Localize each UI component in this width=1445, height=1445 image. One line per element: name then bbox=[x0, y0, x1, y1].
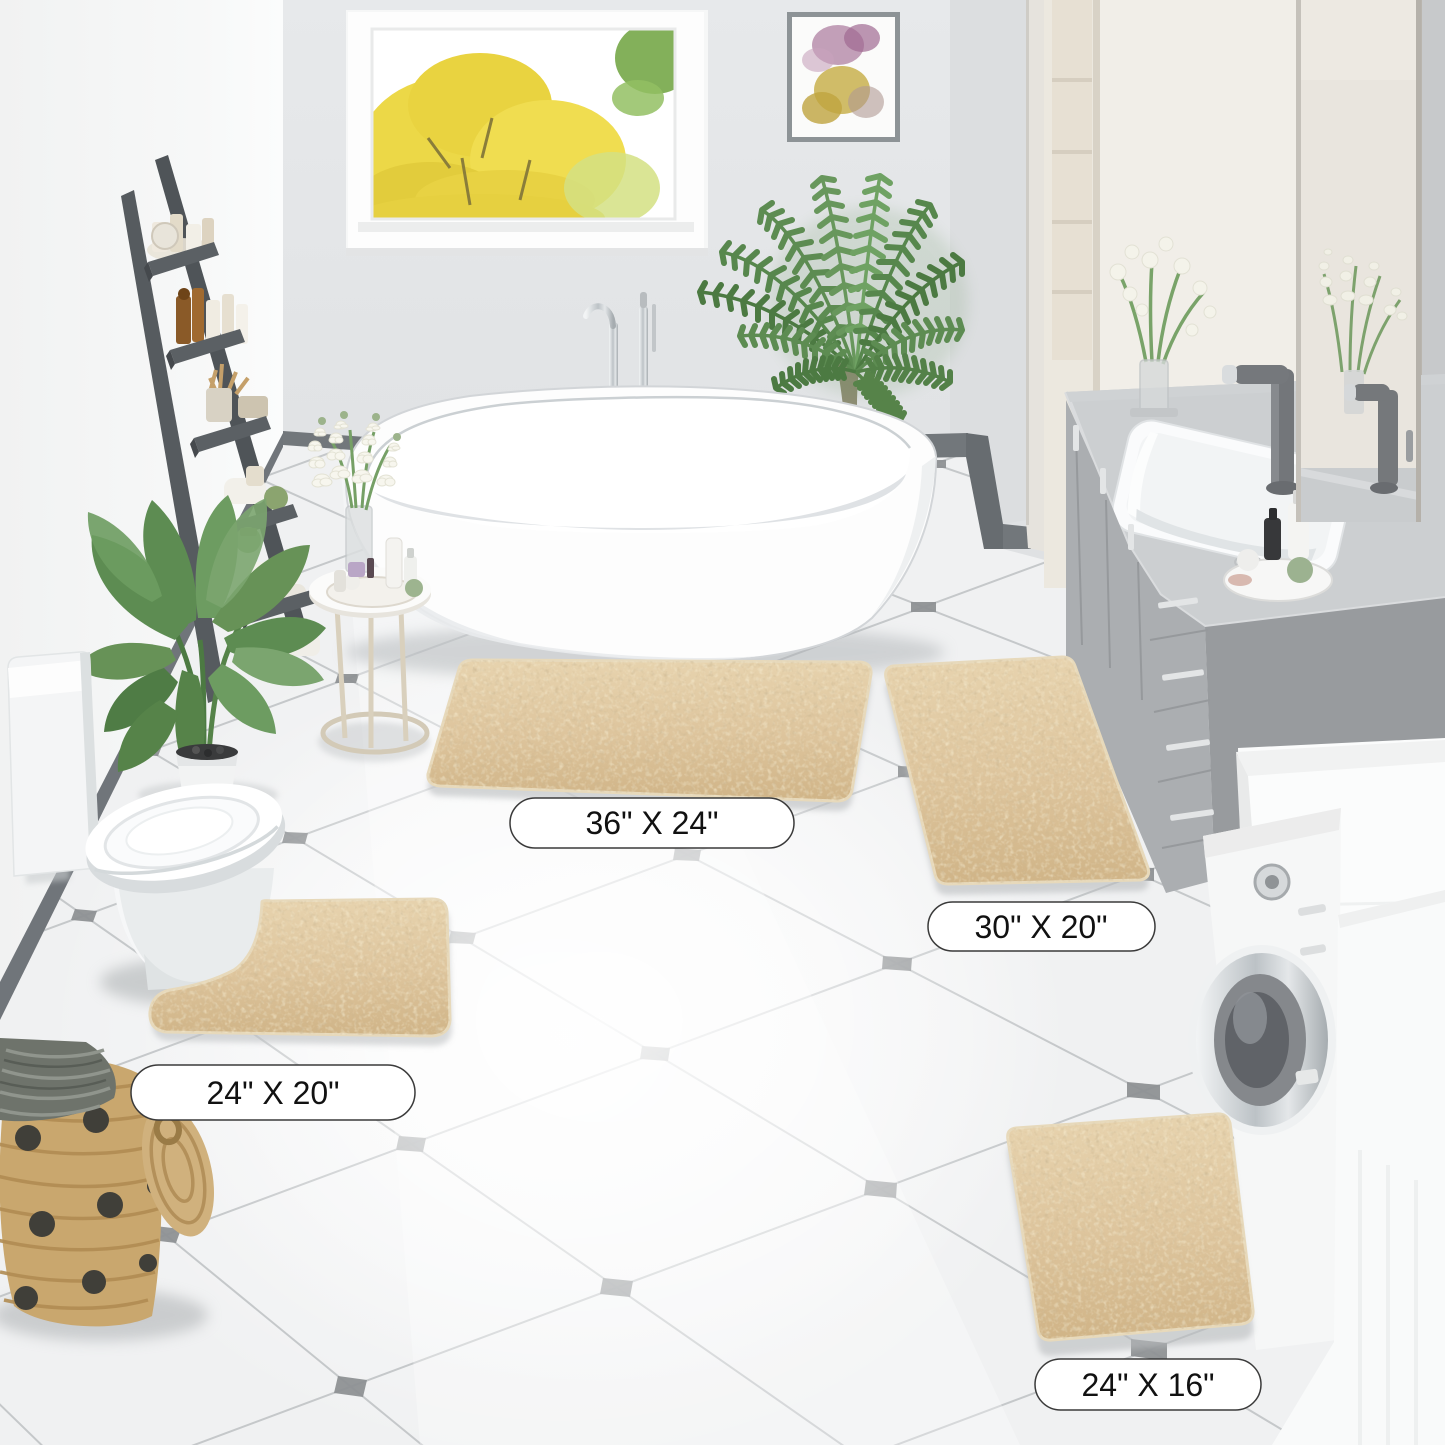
svg-text:24" X 16": 24" X 16" bbox=[1081, 1367, 1214, 1403]
svg-text:24" X 20": 24" X 20" bbox=[206, 1075, 339, 1111]
svg-text:36" X 24": 36" X 24" bbox=[585, 805, 718, 841]
svg-text:30" X 20": 30" X 20" bbox=[974, 909, 1107, 945]
